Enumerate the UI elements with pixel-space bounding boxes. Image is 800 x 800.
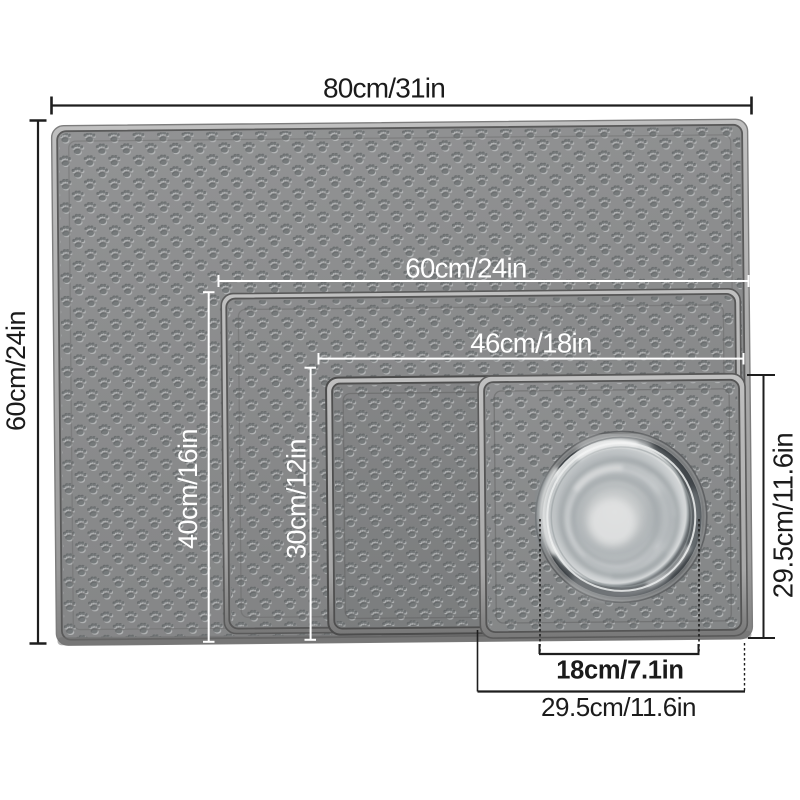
svg-text:29.5cm/11.6in: 29.5cm/11.6in [541, 692, 696, 722]
svg-text:30cm/12in: 30cm/12in [282, 439, 312, 559]
svg-text:46cm/18in: 46cm/18in [470, 328, 591, 359]
svg-text:60cm/24in: 60cm/24in [1, 311, 31, 431]
svg-text:60cm/24in: 60cm/24in [405, 253, 526, 284]
svg-text:40cm/16in: 40cm/16in [173, 429, 203, 549]
svg-text:29.5cm/11.6in: 29.5cm/11.6in [768, 433, 799, 599]
svg-text:18cm/7.1in: 18cm/7.1in [556, 657, 683, 685]
svg-text:80cm/31in: 80cm/31in [323, 73, 445, 104]
